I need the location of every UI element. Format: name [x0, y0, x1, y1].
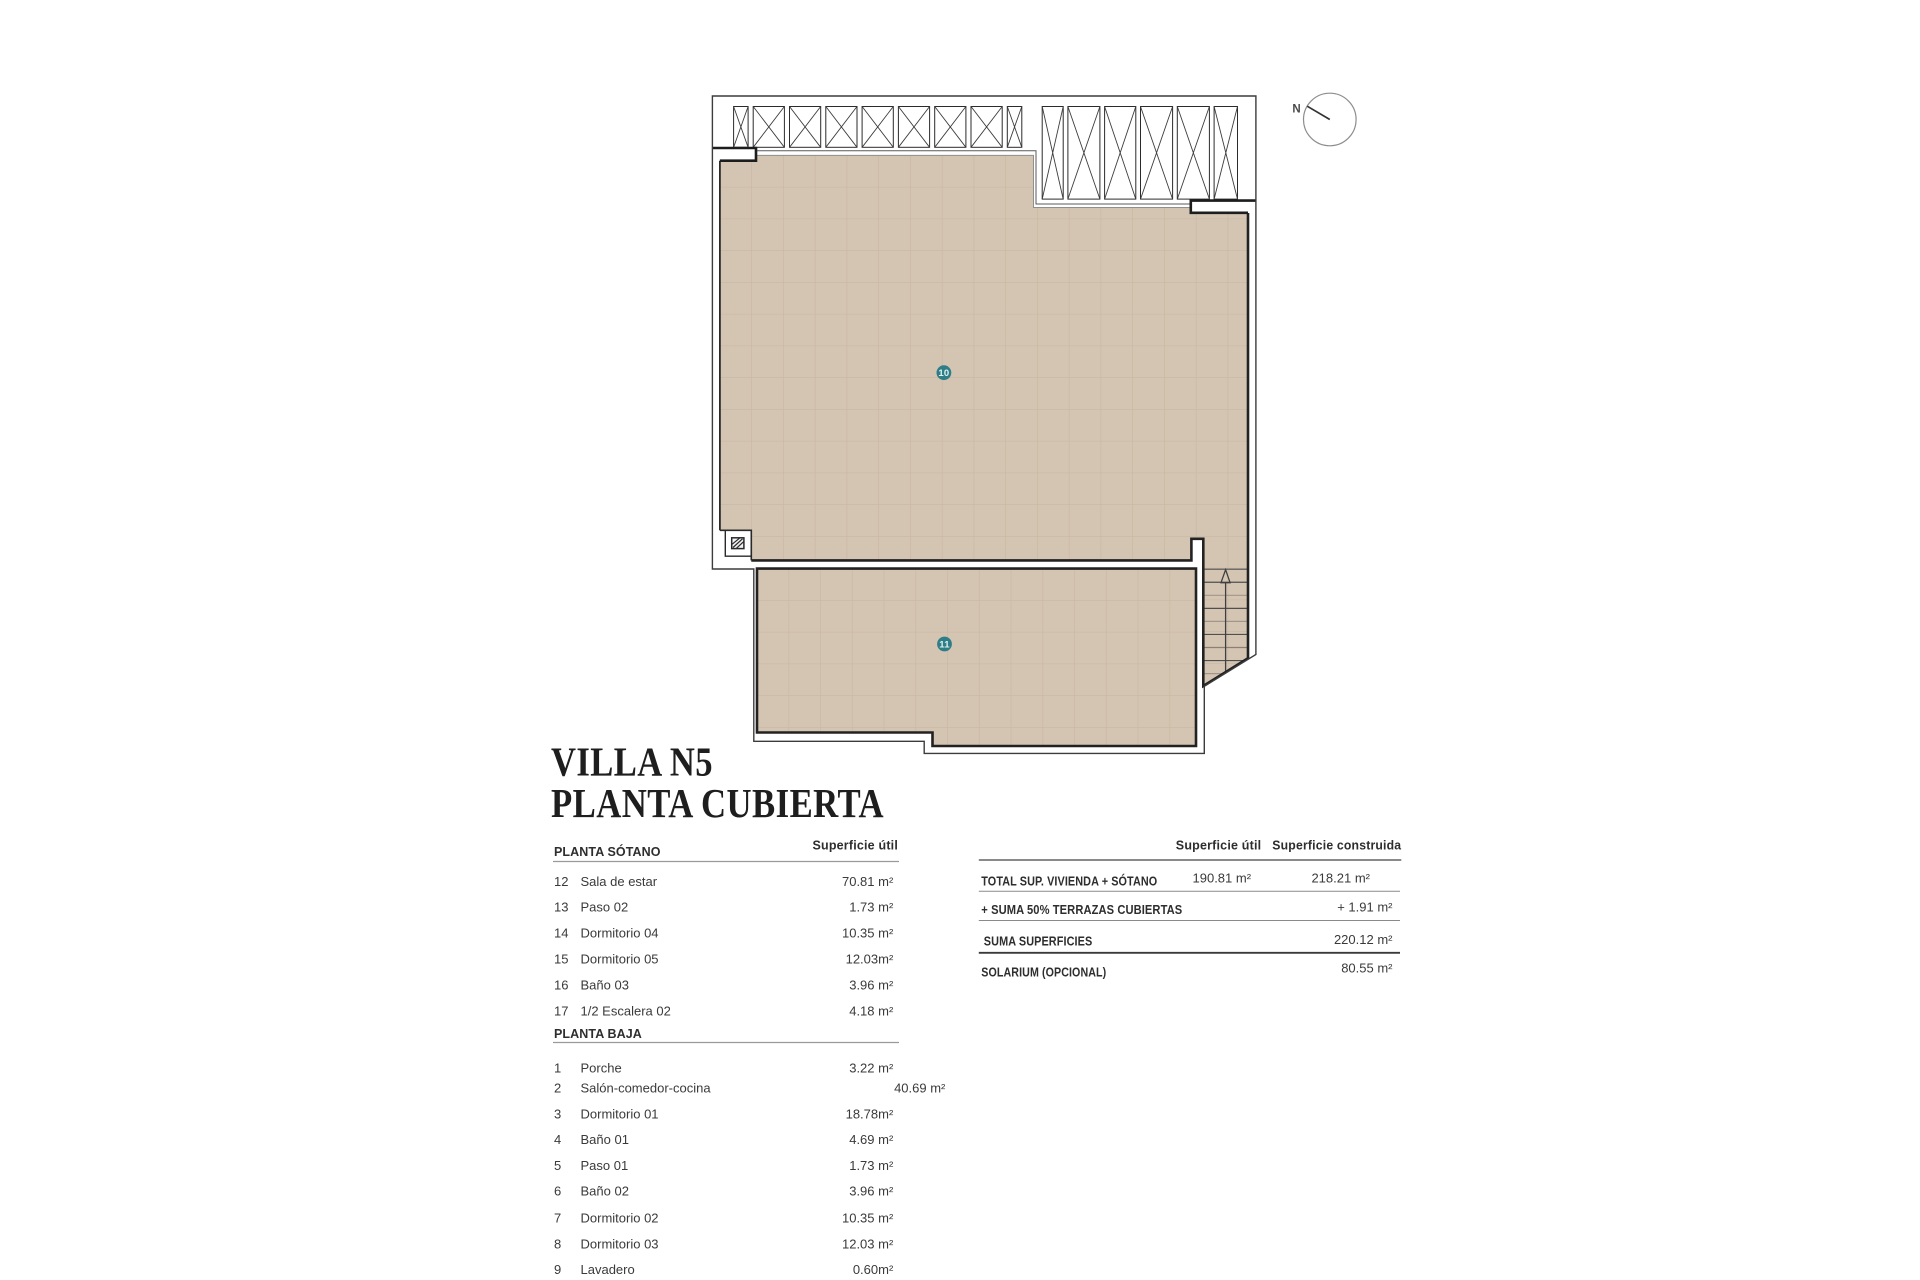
svg-text:+ SUMA 50% TERRAZAS CUBIERTAS: + SUMA 50% TERRAZAS CUBIERTAS [981, 903, 1182, 917]
svg-text:Dormitorio 04: Dormitorio 04 [581, 926, 659, 941]
svg-text:0.60m²: 0.60m² [853, 1262, 894, 1277]
svg-text:17: 17 [554, 1003, 568, 1018]
svg-text:Porche: Porche [581, 1061, 622, 1076]
svg-text:16: 16 [554, 977, 568, 992]
svg-text:Baño 03: Baño 03 [581, 977, 629, 992]
svg-text:9: 9 [554, 1262, 561, 1277]
svg-text:Paso 02: Paso 02 [581, 900, 629, 915]
svg-text:2: 2 [554, 1081, 561, 1096]
svg-text:7: 7 [554, 1211, 561, 1226]
svg-text:10: 10 [938, 368, 949, 379]
svg-text:Baño 01: Baño 01 [581, 1132, 629, 1147]
svg-text:80.55 m²: 80.55 m² [1341, 961, 1393, 976]
svg-text:Superficie construida: Superficie construida [1272, 838, 1402, 853]
svg-text:4.18 m²: 4.18 m² [849, 1003, 894, 1018]
svg-text:10.35 m²: 10.35 m² [842, 1211, 894, 1226]
svg-text:18.78m²: 18.78m² [846, 1107, 894, 1122]
svg-text:8: 8 [554, 1236, 561, 1251]
svg-text:N: N [1292, 104, 1300, 116]
svg-text:Salón-comedor-cocina: Salón-comedor-cocina [581, 1081, 712, 1096]
svg-text:Dormitorio 01: Dormitorio 01 [581, 1107, 659, 1122]
svg-text:3.96 m²: 3.96 m² [849, 977, 894, 992]
svg-text:PLANTA SÓTANO: PLANTA SÓTANO [554, 844, 661, 859]
svg-text:PLANTA CUBIERTA: PLANTA CUBIERTA [551, 780, 884, 826]
svg-text:Lavadero: Lavadero [581, 1262, 635, 1277]
svg-text:Superficie útil: Superficie útil [813, 838, 899, 853]
svg-text:11: 11 [939, 640, 950, 651]
svg-text:6: 6 [554, 1184, 561, 1199]
svg-text:3: 3 [554, 1107, 561, 1122]
svg-text:Dormitorio 02: Dormitorio 02 [581, 1211, 659, 1226]
svg-text:218.21 m²: 218.21 m² [1311, 871, 1370, 886]
svg-text:12: 12 [554, 874, 568, 889]
svg-text:4.69 m²: 4.69 m² [849, 1132, 894, 1147]
svg-text:Dormitorio 05: Dormitorio 05 [581, 952, 659, 967]
svg-text:SOLARIUM (OPCIONAL): SOLARIUM (OPCIONAL) [981, 965, 1106, 979]
svg-text:190.81 m²: 190.81 m² [1193, 871, 1252, 886]
svg-text:SUMA SUPERFICIES: SUMA SUPERFICIES [984, 935, 1093, 949]
svg-text:PLANTA BAJA: PLANTA BAJA [554, 1027, 642, 1041]
svg-text:1: 1 [554, 1061, 561, 1076]
svg-text:1.73 m²: 1.73 m² [849, 900, 894, 915]
svg-text:+ 1.91 m²: + 1.91 m² [1337, 899, 1393, 914]
svg-text:3.96 m²: 3.96 m² [849, 1184, 894, 1199]
svg-text:3.22 m²: 3.22 m² [849, 1061, 894, 1076]
svg-text:Sala de estar: Sala de estar [581, 874, 658, 889]
svg-text:10.35 m²: 10.35 m² [842, 926, 894, 941]
svg-text:12.03 m²: 12.03 m² [842, 1236, 894, 1251]
svg-text:70.81 m²: 70.81 m² [842, 874, 894, 889]
svg-text:220.12 m²: 220.12 m² [1334, 932, 1393, 947]
svg-text:4: 4 [554, 1132, 561, 1147]
svg-text:13: 13 [554, 900, 568, 915]
svg-text:12.03m²: 12.03m² [846, 952, 894, 967]
svg-text:14: 14 [554, 926, 568, 941]
svg-text:Baño 02: Baño 02 [581, 1184, 629, 1199]
svg-text:1/2 Escalera 02: 1/2 Escalera 02 [581, 1003, 671, 1018]
svg-text:Paso 01: Paso 01 [581, 1158, 629, 1173]
svg-text:5: 5 [554, 1158, 561, 1173]
svg-text:40.69 m²: 40.69 m² [894, 1081, 946, 1096]
svg-text:Superficie útil: Superficie útil [1176, 838, 1262, 853]
svg-text:TOTAL SUP. VIVIENDA + SÓTANO: TOTAL SUP. VIVIENDA + SÓTANO [981, 874, 1157, 889]
svg-text:VILLA N5: VILLA N5 [551, 739, 713, 785]
svg-text:1.73 m²: 1.73 m² [849, 1158, 894, 1173]
svg-text:15: 15 [554, 952, 568, 967]
svg-text:Dormitorio 03: Dormitorio 03 [581, 1236, 659, 1251]
